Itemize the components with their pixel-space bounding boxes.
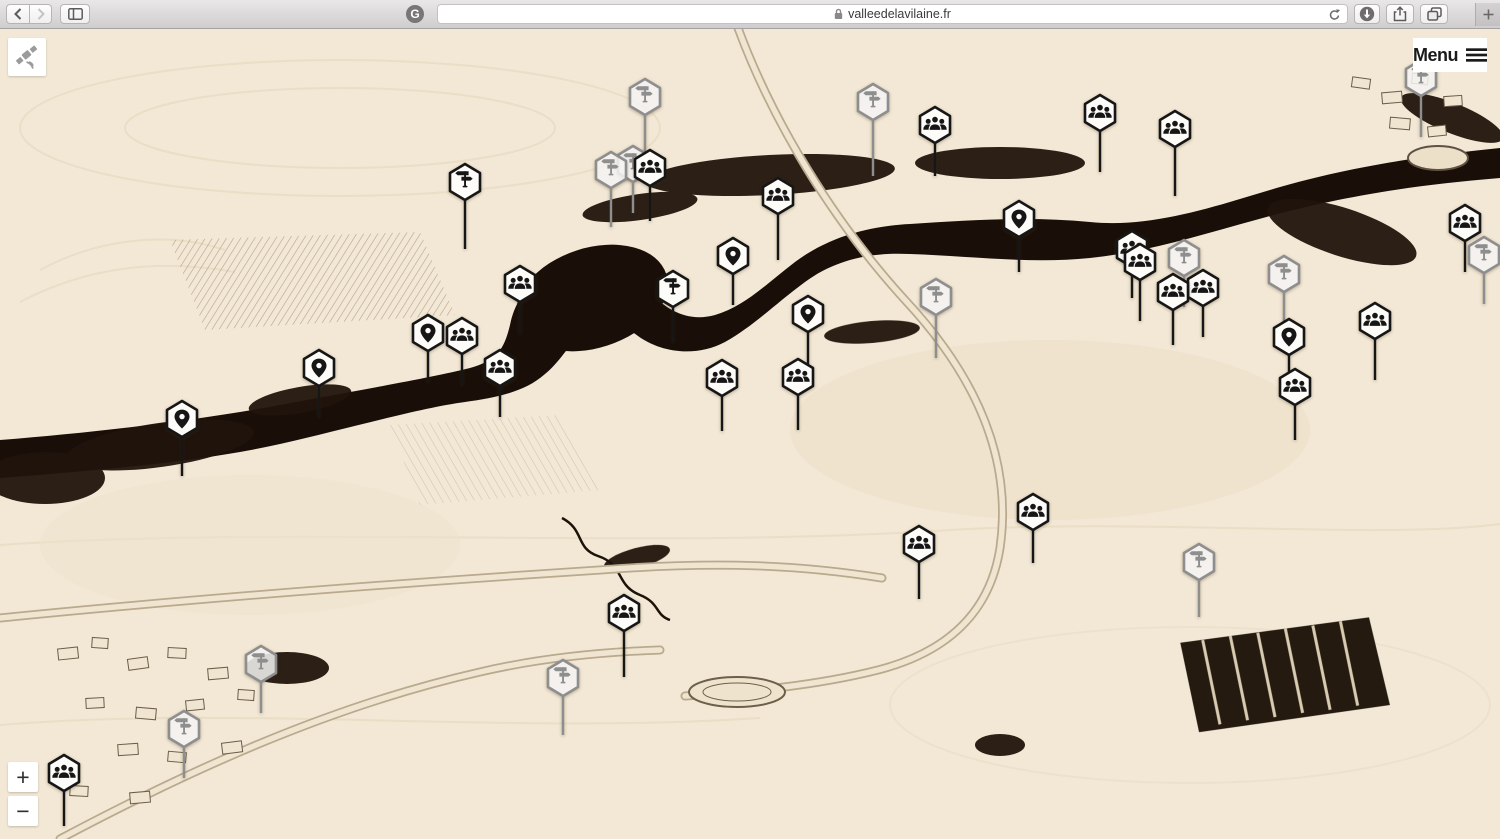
menu-button[interactable]: Menu xyxy=(1413,38,1487,72)
satellite-icon xyxy=(13,43,41,71)
browser-toolbar: G valleedelavilaine.fr xyxy=(0,0,1500,29)
browser-window: { "browser_chrome": { "url": "valleedela… xyxy=(0,0,1500,839)
forward-button[interactable] xyxy=(30,4,52,24)
back-button[interactable] xyxy=(6,4,30,24)
map-marker-group[interactable] xyxy=(704,358,740,432)
map-marker-signpost[interactable] xyxy=(593,150,629,228)
map-marker-group[interactable] xyxy=(760,176,796,261)
url-text: valleedelavilaine.fr xyxy=(848,7,951,21)
stadium xyxy=(1408,146,1468,170)
map-marker-signpost[interactable] xyxy=(1266,254,1302,324)
chevron-right-icon xyxy=(37,8,45,20)
map-marker-group[interactable] xyxy=(502,264,538,334)
map-marker-signpost[interactable] xyxy=(545,658,581,736)
map-marker-group[interactable] xyxy=(1082,93,1118,173)
site-logo[interactable] xyxy=(8,38,46,76)
map-marker-signpost[interactable] xyxy=(166,709,202,779)
map-marker-pin[interactable] xyxy=(301,348,337,418)
map-marker-group[interactable] xyxy=(46,753,82,827)
map-marker-signpost[interactable] xyxy=(855,82,891,177)
menu-label: Menu xyxy=(1413,45,1458,66)
new-tab-button[interactable] xyxy=(1475,3,1500,26)
map-marker-group[interactable] xyxy=(1277,367,1313,441)
map-marker-signpost[interactable] xyxy=(1181,542,1217,618)
overlapping-squares-icon xyxy=(1427,7,1442,21)
sidebar-toggle-button[interactable] xyxy=(60,4,90,24)
map-marker-group[interactable] xyxy=(482,348,518,418)
map-marker-pin[interactable] xyxy=(1001,199,1037,273)
map-marker-signpost[interactable] xyxy=(1466,235,1500,305)
map-marker-group[interactable] xyxy=(1155,272,1191,346)
map-marker-group[interactable] xyxy=(917,105,953,177)
map-marker-pin[interactable] xyxy=(715,236,751,306)
map-marker-pin[interactable] xyxy=(164,399,200,477)
address-bar[interactable]: valleedelavilaine.fr xyxy=(437,4,1348,24)
map-marker-group[interactable] xyxy=(444,316,480,386)
map-marker-pin[interactable] xyxy=(410,313,446,383)
extension-button[interactable]: G xyxy=(406,5,424,23)
map-marker-signpost[interactable] xyxy=(243,644,279,714)
zoom-out-button[interactable]: − xyxy=(8,796,38,826)
downloads-button[interactable] xyxy=(1354,4,1380,24)
illustrated-map[interactable] xyxy=(0,0,1500,839)
racetrack xyxy=(689,677,785,707)
map-marker-group[interactable] xyxy=(780,357,816,431)
map-marker-signpost[interactable] xyxy=(918,277,954,359)
map-marker-group[interactable] xyxy=(1122,242,1158,322)
map-marker-group[interactable] xyxy=(632,148,668,222)
map-marker-signpost[interactable] xyxy=(655,269,691,343)
reload-icon[interactable] xyxy=(1328,8,1341,22)
tab-overview-button[interactable] xyxy=(1420,4,1448,24)
padlock-icon xyxy=(834,8,843,20)
zoom-in-button[interactable]: + xyxy=(8,762,38,792)
download-circle-icon xyxy=(1359,6,1375,22)
map-marker-group[interactable] xyxy=(901,524,937,600)
map-illustration-svg xyxy=(0,0,1500,839)
hamburger-icon xyxy=(1466,47,1487,63)
map-marker-group[interactable] xyxy=(1015,492,1051,564)
share-button[interactable] xyxy=(1386,4,1414,24)
split-pane-icon xyxy=(68,8,83,20)
map-marker-group[interactable] xyxy=(1157,109,1193,197)
extension-badge-letter: G xyxy=(410,7,419,21)
chevron-left-icon xyxy=(14,8,22,20)
map-marker-group[interactable] xyxy=(1357,301,1393,381)
map-marker-group[interactable] xyxy=(606,593,642,678)
map-marker-signpost[interactable] xyxy=(447,162,483,250)
plus-icon xyxy=(1483,9,1494,20)
share-arrow-icon xyxy=(1393,6,1407,22)
zoom-in-label: + xyxy=(16,764,29,791)
zoom-out-label: − xyxy=(16,798,29,825)
